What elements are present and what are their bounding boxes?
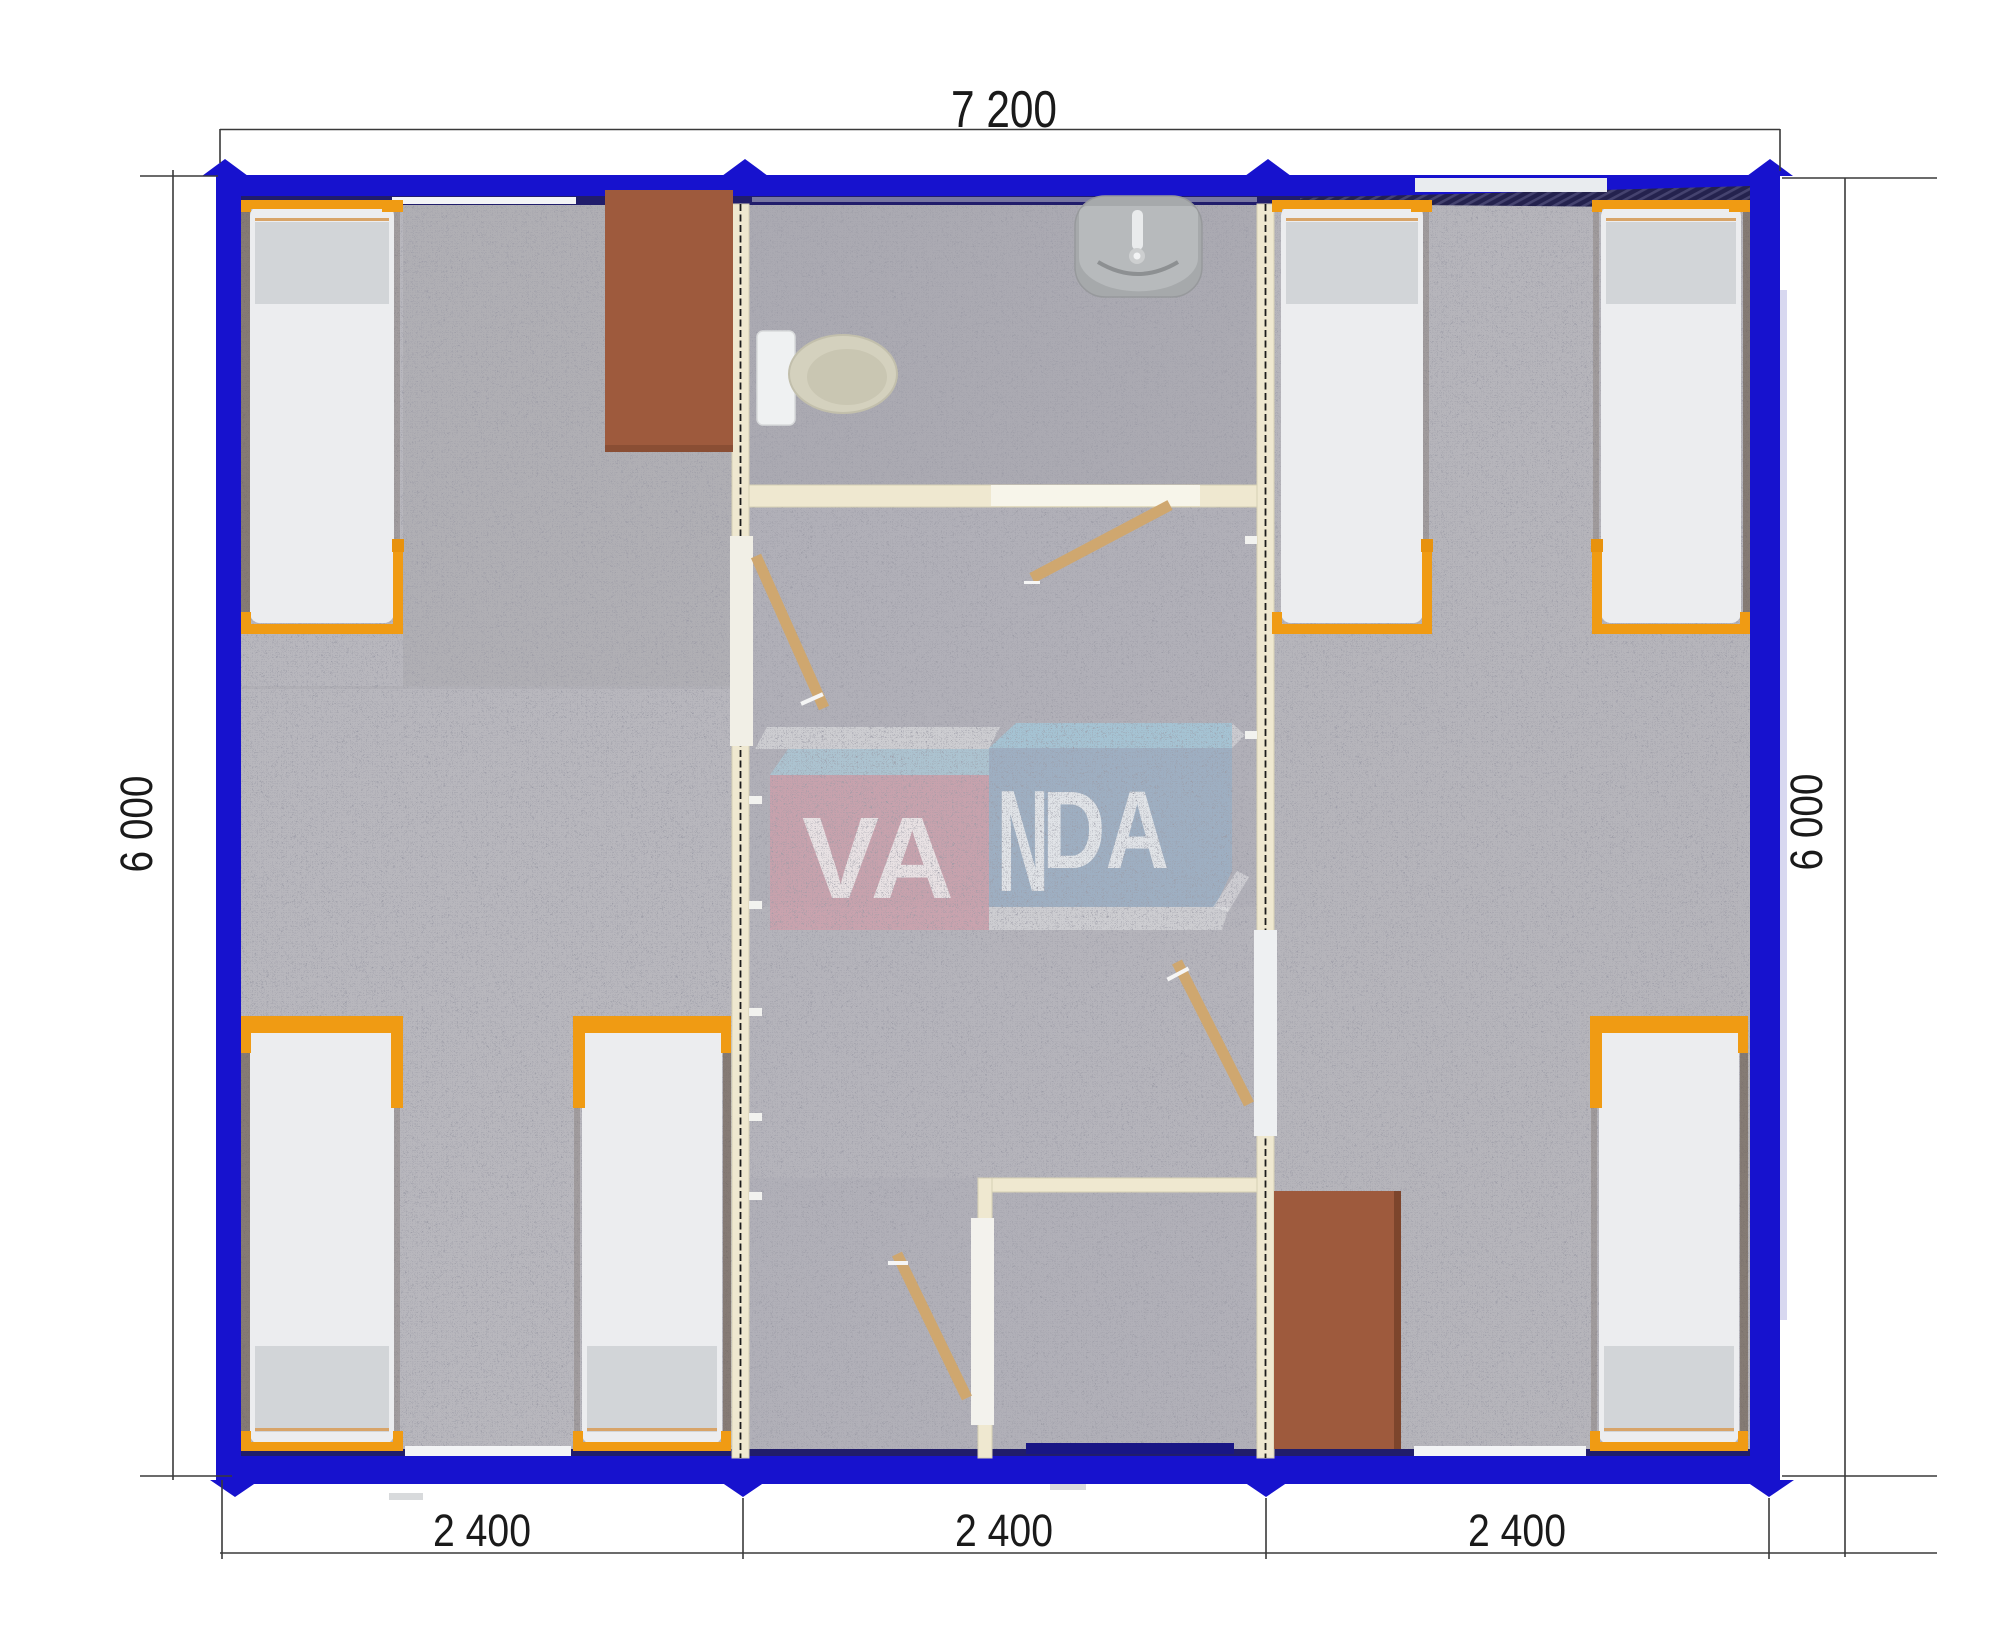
svg-text:2 400: 2 400: [1468, 1505, 1566, 1556]
svg-text:6 000: 6 000: [1781, 774, 1832, 871]
svg-text:7 200: 7 200: [951, 81, 1057, 139]
svg-text:2 400: 2 400: [433, 1505, 531, 1556]
svg-text:2 400: 2 400: [955, 1505, 1053, 1556]
svg-text:6 000: 6 000: [111, 776, 162, 873]
